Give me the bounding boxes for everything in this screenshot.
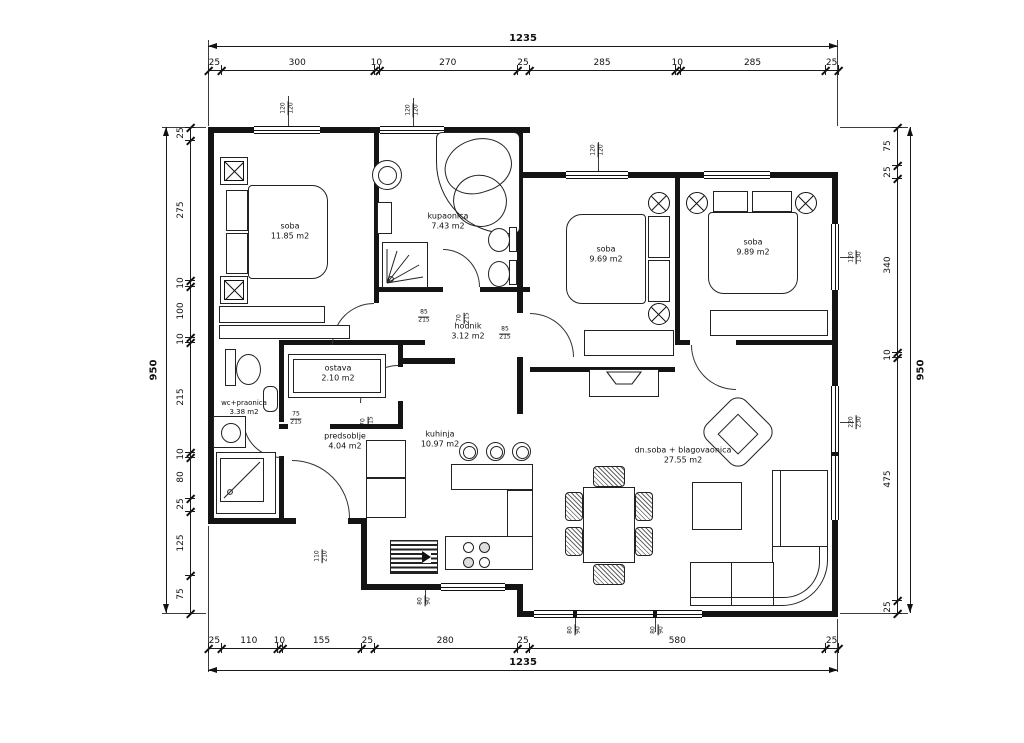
arrow-icon	[829, 43, 838, 49]
entrance-door-arc	[292, 460, 350, 518]
burner-icon	[463, 542, 474, 553]
burner-icon	[463, 557, 474, 568]
ceiling-light-icon	[795, 192, 817, 214]
arrow-icon	[907, 604, 913, 613]
room-name: ostava	[321, 364, 354, 374]
opening-size-label: 70215	[361, 416, 376, 427]
extension-line	[840, 422, 854, 423]
door-arc	[691, 345, 736, 390]
extension-line	[655, 613, 656, 632]
window-icon	[380, 126, 444, 134]
room-area: 7.43 m2	[428, 222, 469, 232]
dim-total-left: 950	[149, 360, 160, 381]
pillow-icon	[226, 233, 248, 274]
chair-icon	[593, 466, 625, 487]
tv-icon	[605, 371, 643, 390]
opening-size-label: 8090	[651, 625, 666, 636]
extension-line	[840, 257, 854, 258]
room-area: 10.97 m2	[421, 440, 459, 450]
room-name: soba	[271, 222, 309, 232]
dim-ext-tick	[221, 65, 222, 75]
burner-icon	[479, 542, 490, 553]
dim-ext-tick	[185, 457, 195, 458]
toilet-icon	[488, 228, 510, 252]
wardrobe-icon	[219, 306, 325, 323]
dim-label: 80	[176, 472, 186, 483]
room-label-predsoblje: predsoblje 4.04 m2	[324, 432, 366, 453]
opening-size-label: 85215	[418, 310, 429, 325]
wall	[279, 345, 284, 422]
dim-label: 75	[176, 588, 186, 599]
window-icon	[566, 171, 628, 179]
room-area: 2.10 m2	[321, 374, 354, 384]
dim-total-line-right	[910, 127, 911, 613]
opening-size-label: 75215	[290, 412, 301, 427]
stool-icon	[486, 442, 505, 461]
toilet-tank-icon	[509, 227, 517, 252]
dim-label: 110	[240, 636, 257, 646]
dim-total-line-bottom	[208, 670, 838, 671]
dim-label: 155	[313, 636, 330, 646]
door-arc	[530, 313, 574, 357]
arrow-icon	[208, 667, 217, 673]
dim-label: 10	[672, 58, 683, 68]
dim-total-line-top	[208, 46, 838, 47]
room-name: soba	[736, 238, 769, 248]
chair-icon	[593, 564, 625, 585]
room-area: 3.12 m2	[451, 332, 484, 342]
ceiling-light-icon	[648, 192, 670, 214]
dim-label: 285	[744, 58, 761, 68]
pillow-icon	[648, 216, 670, 258]
cabinet-icon	[377, 202, 392, 234]
room-name: kupaonica	[428, 212, 469, 222]
wall	[517, 357, 523, 372]
room-label-dnevna-soba: dn.soba + blagovaonica 27.55 m2	[635, 446, 732, 467]
room-label-soba-1: soba 11.85 m2	[271, 222, 309, 243]
room-label-wc-praonica: wc+praonica 3.38 m2	[221, 399, 267, 417]
cabinet-icon	[366, 478, 406, 518]
burner-icon	[479, 557, 490, 568]
arrow-icon	[829, 667, 838, 673]
room-name: kuhinja	[421, 430, 459, 440]
dim-label: 300	[289, 58, 306, 68]
dim-ext-tick	[374, 643, 375, 653]
dim-ext-tick	[185, 286, 195, 287]
lamp-icon	[224, 161, 244, 181]
dim-label: 25	[517, 636, 528, 646]
pillow-icon	[226, 190, 248, 231]
wall	[398, 358, 455, 364]
floor-plan-sheet: soba 11.85 m2 kupaonica 7.43 m2 soba 9.6…	[0, 0, 1024, 743]
wall	[208, 518, 296, 524]
dim-label: 100	[176, 303, 186, 320]
dim-label: 25	[209, 636, 220, 646]
dim-label: 285	[593, 58, 610, 68]
stool-icon	[512, 442, 531, 461]
room-area: 11.85 m2	[271, 232, 309, 242]
dim-line	[897, 127, 898, 613]
chair-icon	[635, 492, 653, 521]
counter-icon	[451, 464, 533, 490]
dim-ext-tick	[185, 140, 195, 141]
wardrobe-icon	[219, 325, 350, 339]
room-area: 4.04 m2	[324, 442, 366, 452]
wall	[480, 287, 530, 292]
stool-icon	[459, 442, 478, 461]
dim-ext-tick	[892, 357, 902, 358]
room-label-soba-2: soba 9.69 m2	[589, 245, 622, 266]
dim-ext-tick	[892, 127, 902, 128]
dim-label: 25	[209, 58, 220, 68]
dim-label: 25	[176, 499, 186, 510]
sofa-icon	[690, 562, 774, 606]
dim-ext-tick	[185, 575, 195, 576]
extension-line	[575, 613, 576, 632]
room-area: 9.89 m2	[736, 248, 769, 258]
arrow-icon	[163, 604, 169, 613]
lamp-icon	[224, 280, 244, 300]
opening-size-label: 85215	[499, 327, 510, 342]
dim-total-line-left	[166, 127, 167, 613]
dim-ext-tick	[892, 165, 902, 166]
dim-label: 25	[517, 58, 528, 68]
wall	[361, 518, 367, 590]
dim-label: 10	[176, 449, 186, 460]
extension-line	[288, 96, 289, 126]
dim-ext-tick	[838, 643, 839, 653]
window-icon	[254, 126, 320, 134]
sink-icon	[372, 160, 402, 190]
sofa-icon	[772, 470, 828, 548]
room-label-ostava: ostava 2.10 m2	[321, 364, 354, 385]
ceiling-light-icon	[648, 303, 670, 325]
dim-ext-tick	[892, 613, 902, 614]
dim-total-top: 1235	[509, 33, 537, 44]
room-label-soba-3: soba 9.89 m2	[736, 238, 769, 259]
extension-line	[598, 142, 599, 171]
dim-label: 275	[176, 202, 186, 219]
dim-label: 475	[883, 470, 893, 487]
extension-line	[425, 586, 426, 603]
toilet-tank-icon	[225, 349, 236, 386]
room-name: predsoblje	[324, 432, 366, 442]
dim-total-right: 950	[916, 360, 927, 381]
bidet-tank-icon	[509, 260, 517, 285]
arrow-icon	[208, 43, 217, 49]
window-icon	[534, 610, 702, 618]
dim-label: 280	[437, 636, 454, 646]
dim-ext-tick	[529, 643, 530, 653]
side-table-icon	[692, 482, 742, 530]
dim-label: 75	[883, 140, 893, 151]
dim-label: 215	[176, 388, 186, 405]
dining-table-icon	[583, 487, 635, 563]
dim-label: 580	[669, 636, 686, 646]
extension-line	[208, 40, 209, 126]
door-arc	[443, 249, 480, 287]
room-label-hodnik: hodnik 3.12 m2	[451, 322, 484, 343]
counter-icon	[507, 490, 533, 538]
shower-icon	[382, 242, 428, 288]
room-name: dn.soba + blagovaonica	[635, 446, 732, 456]
stove-icon	[390, 540, 438, 574]
room-area: 9.69 m2	[589, 255, 622, 265]
wall	[675, 178, 680, 345]
room-name: wc+praonica	[221, 399, 267, 408]
dim-line	[208, 648, 838, 649]
extension-line	[413, 98, 414, 126]
dim-label: 25	[883, 166, 893, 177]
dim-label: 25	[826, 58, 837, 68]
dim-ext-tick	[185, 127, 195, 128]
wall	[736, 340, 838, 345]
bench-icon	[710, 310, 828, 336]
arrow-icon	[907, 127, 913, 136]
dim-line	[208, 70, 838, 71]
dim-label: 10	[176, 277, 186, 288]
dim-ext-tick	[185, 498, 195, 499]
dim-line	[190, 127, 191, 613]
fridge-icon	[366, 440, 406, 478]
dim-label: 10	[371, 58, 382, 68]
room-label-kupaonica: kupaonica 7.43 m2	[428, 212, 469, 233]
wall	[517, 372, 523, 414]
pillow-icon	[648, 260, 670, 302]
wall	[680, 340, 690, 345]
extension-line	[162, 613, 206, 614]
wardrobe-icon	[584, 330, 674, 356]
wall	[208, 127, 214, 524]
dim-label: 25	[826, 636, 837, 646]
dim-ext-tick	[529, 65, 530, 75]
sofa-corner-icon	[772, 546, 828, 606]
dim-label: 270	[439, 58, 456, 68]
dim-label: 340	[883, 257, 893, 274]
window-icon	[704, 171, 770, 179]
chair-icon	[635, 527, 653, 556]
shower-icon	[220, 458, 264, 502]
dim-ext-tick	[185, 511, 195, 512]
dim-ext-tick	[838, 65, 839, 75]
pillow-icon	[752, 191, 792, 212]
dim-label: 25	[883, 601, 893, 612]
bidet-icon	[488, 261, 510, 287]
dim-ext-tick	[892, 600, 902, 601]
ceiling-light-icon	[686, 192, 708, 214]
dim-label: 25	[176, 128, 186, 139]
washing-machine-icon	[213, 416, 246, 448]
room-area: 27.55 m2	[635, 456, 732, 466]
toilet-icon	[236, 354, 261, 385]
dim-ext-tick	[185, 613, 195, 614]
dim-ext-tick	[221, 643, 222, 653]
wall	[279, 456, 284, 518]
dim-label: 125	[176, 534, 186, 551]
room-area: 3.38 m2	[221, 408, 267, 417]
pillow-icon	[713, 191, 748, 212]
room-name: soba	[589, 245, 622, 255]
window-icon	[831, 224, 839, 290]
dim-label: 25	[362, 636, 373, 646]
dim-label: 10	[883, 349, 893, 360]
room-label-kuhinja: kuhinja 10.97 m2	[421, 430, 459, 451]
chair-icon	[565, 492, 583, 521]
opening-size-label: 110210	[315, 549, 330, 563]
dim-ext-tick	[185, 342, 195, 343]
extension-line	[837, 40, 838, 126]
chair-icon	[565, 527, 583, 556]
window-mullion	[831, 452, 839, 456]
opening-size-label: 70215	[457, 312, 472, 323]
dim-total-bottom: 1235	[509, 657, 537, 668]
arrow-icon	[163, 127, 169, 136]
dim-label: 10	[176, 334, 186, 345]
window-icon	[441, 583, 505, 591]
dim-ext-tick	[892, 178, 902, 179]
dim-label: 10	[274, 636, 285, 646]
